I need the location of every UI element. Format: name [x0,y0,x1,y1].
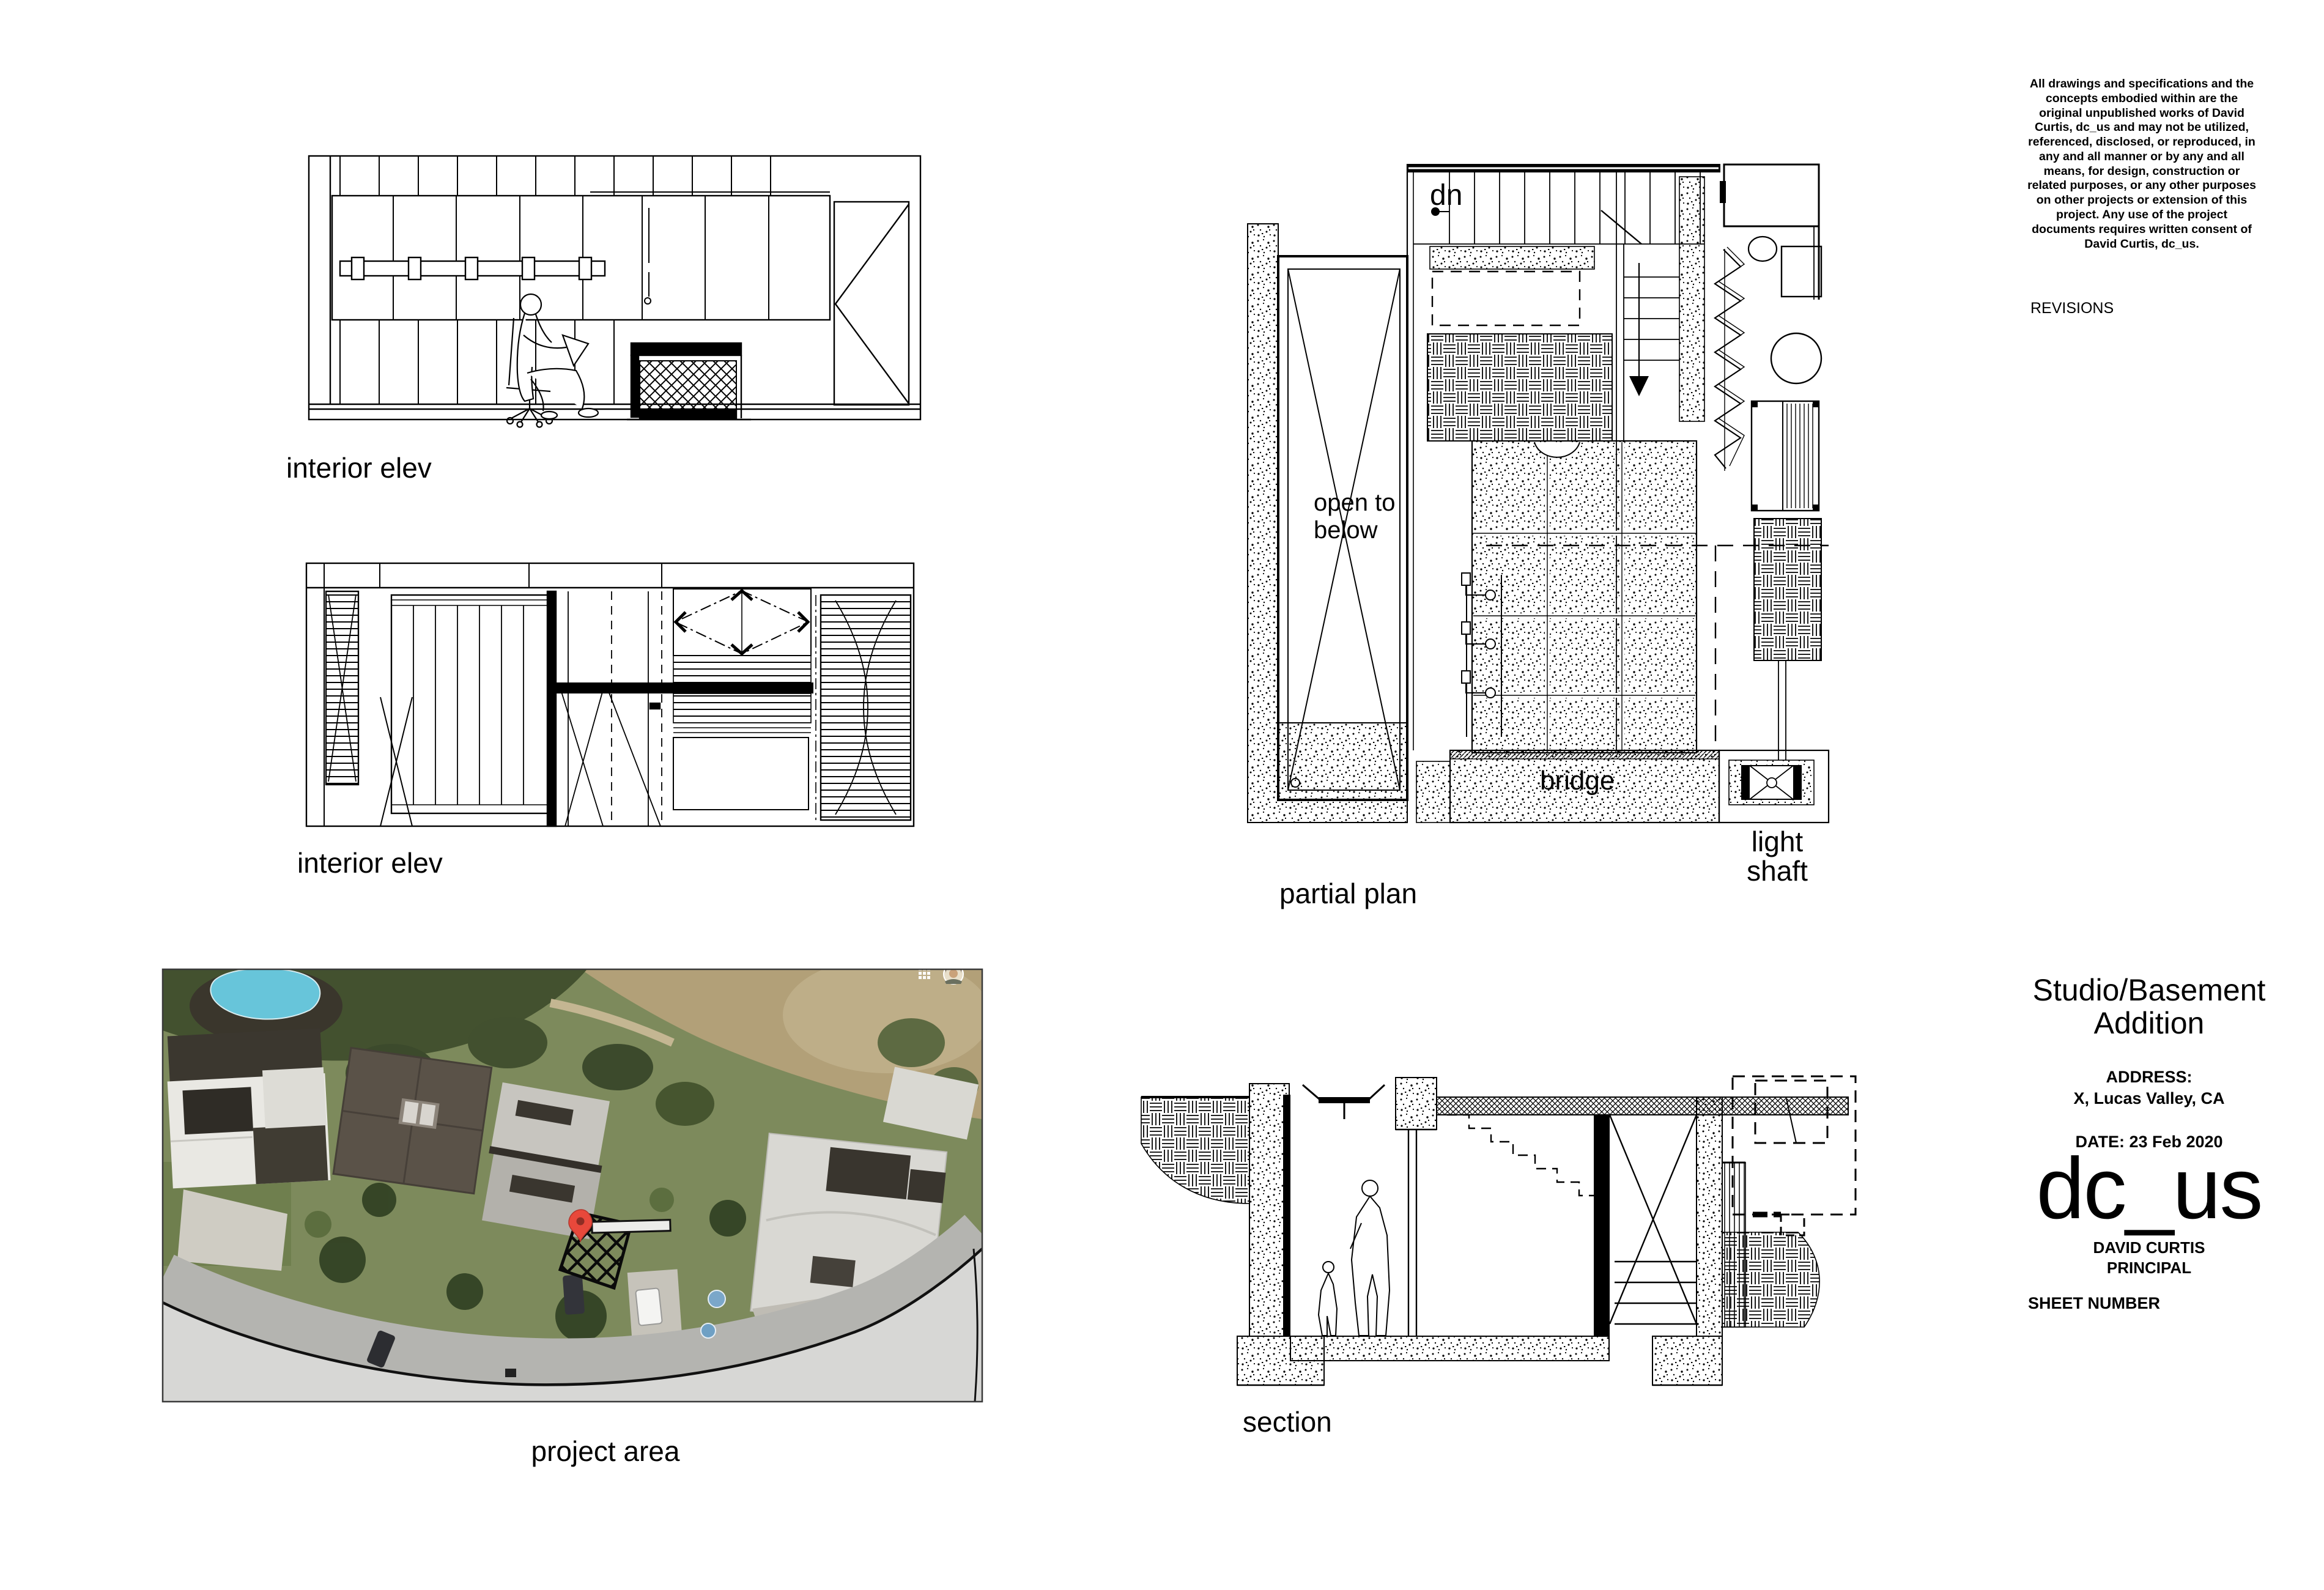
louver-panel-left [326,591,358,785]
address-value: X, Lucas Valley, CA [2019,1088,2279,1109]
open-to-below-annotation: open to below [1314,489,1424,544]
person-figures [1319,1180,1390,1336]
diamond-vent-panel [673,589,811,656]
partial-plan-label: partial plan [1279,877,1417,910]
section-label: section [1243,1405,1332,1438]
interior-elevation-1-drawing [309,156,920,427]
door-elevation [834,202,909,405]
project-area-label: project area [465,1435,746,1468]
plan-right-wing [1715,165,1821,760]
light-shaft-label: light shaft [1728,827,1826,886]
principal-block: DAVID CURTIS PRINCIPAL [2019,1238,2279,1278]
project-area-photo [163,957,991,1402]
legal-notice: All drawings and specifications and the … [2026,77,2258,251]
bridge-annotation: bridge [1540,766,1615,796]
desk [627,343,751,420]
avatar[interactable] [944,964,963,984]
stair-dn-annotation: dn [1430,179,1462,212]
house-2 [333,1048,492,1193]
drawing-sheet: All drawings and specifications and the … [0,0,2324,1590]
section-drawing [1141,1076,1856,1385]
interior-elev-2-label: interior elev [297,846,443,879]
louver-panel-right [816,595,911,820]
principal-name: DAVID CURTIS [2019,1238,2279,1258]
address-block: ADDRESS: X, Lucas Valley, CA [2019,1067,2279,1109]
interior-elev-1-label: interior elev [286,451,432,484]
interior-elevation-2-drawing [306,563,914,826]
sheet-number-label: SHEET NUMBER [2028,1294,2160,1313]
shelf-rail [340,257,605,279]
sheet-linework [0,0,2324,1590]
address-label: ADDRESS: [2019,1067,2279,1088]
light-shaft-plan [1719,750,1829,823]
principal-role: PRINCIPAL [2019,1258,2279,1278]
project-title: Studio/Basement Addition [2016,974,2282,1040]
revisions-heading: REVISIONS [2030,300,2114,317]
firm-logo: dc_us [2019,1139,2279,1239]
house-1 [165,1028,331,1188]
